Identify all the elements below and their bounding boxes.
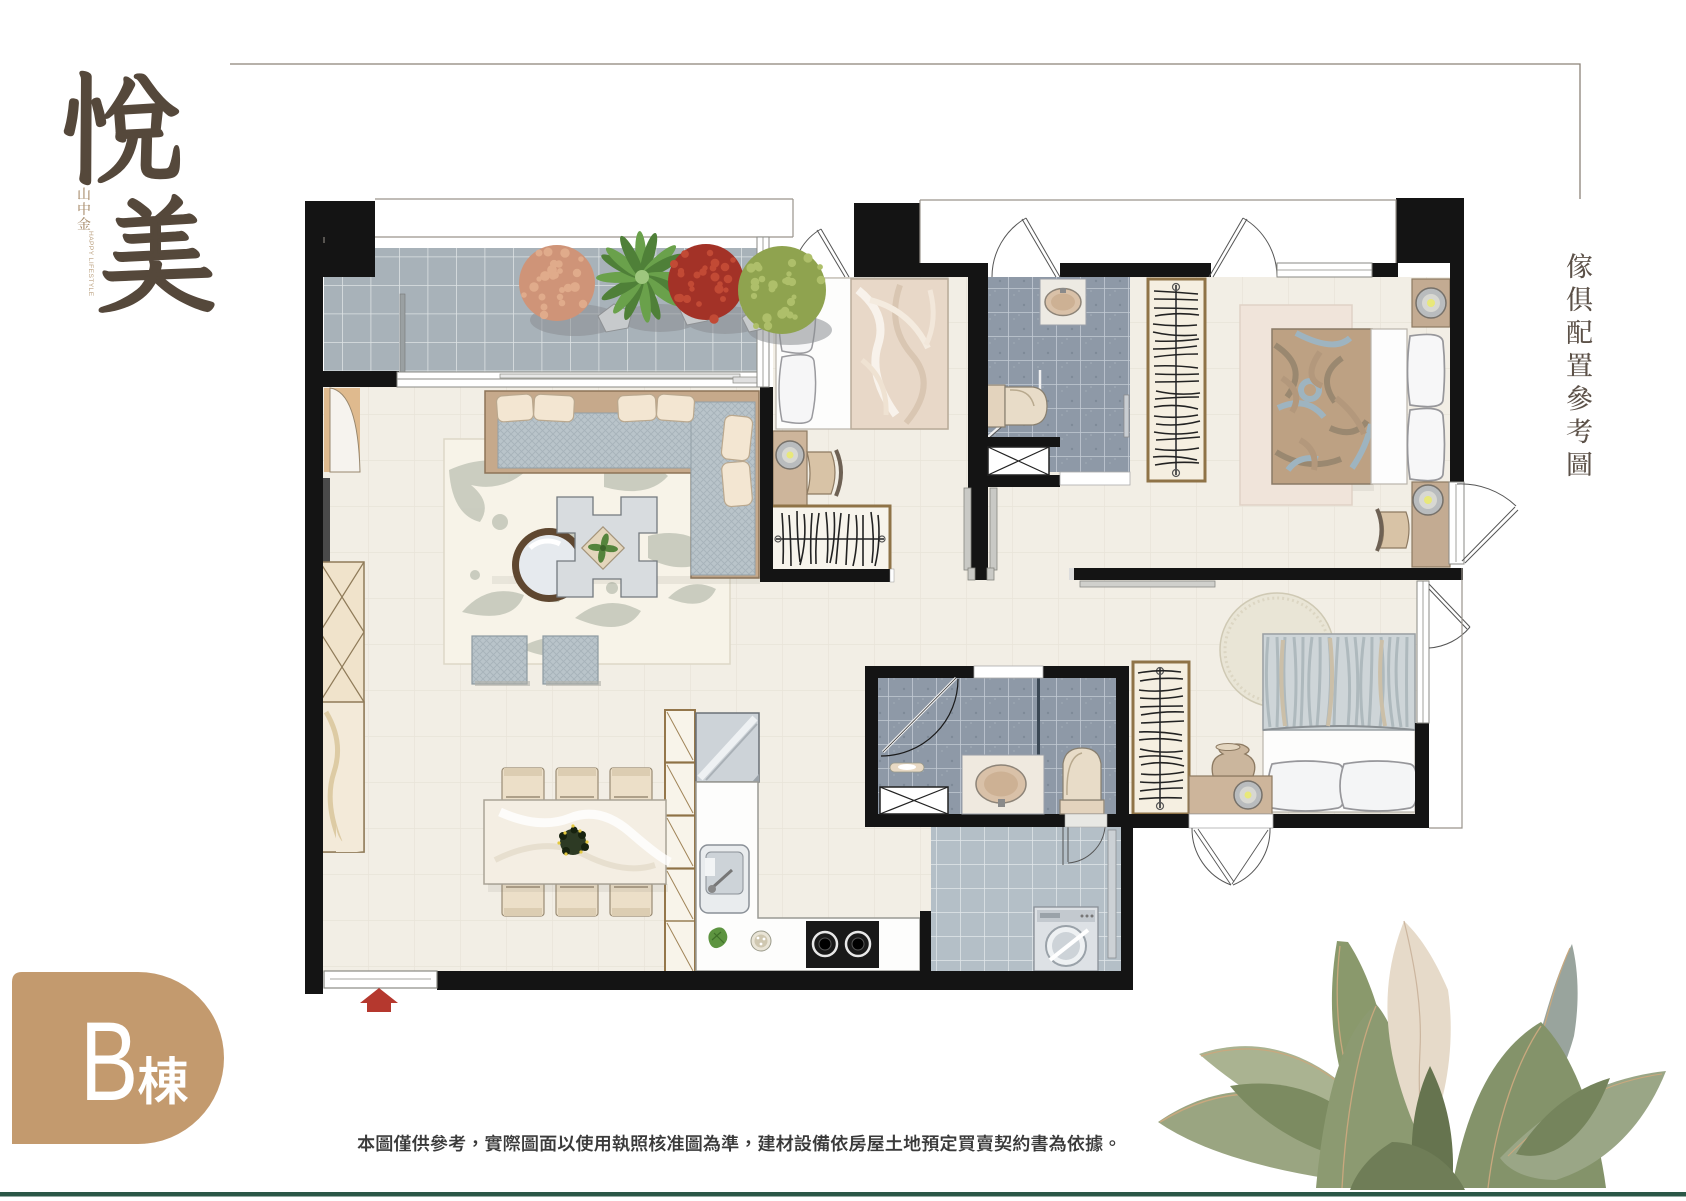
svg-text:HAPPY LIFESTYLE: HAPPY LIFESTYLE [87,231,94,297]
svg-text:B: B [80,1000,138,1125]
